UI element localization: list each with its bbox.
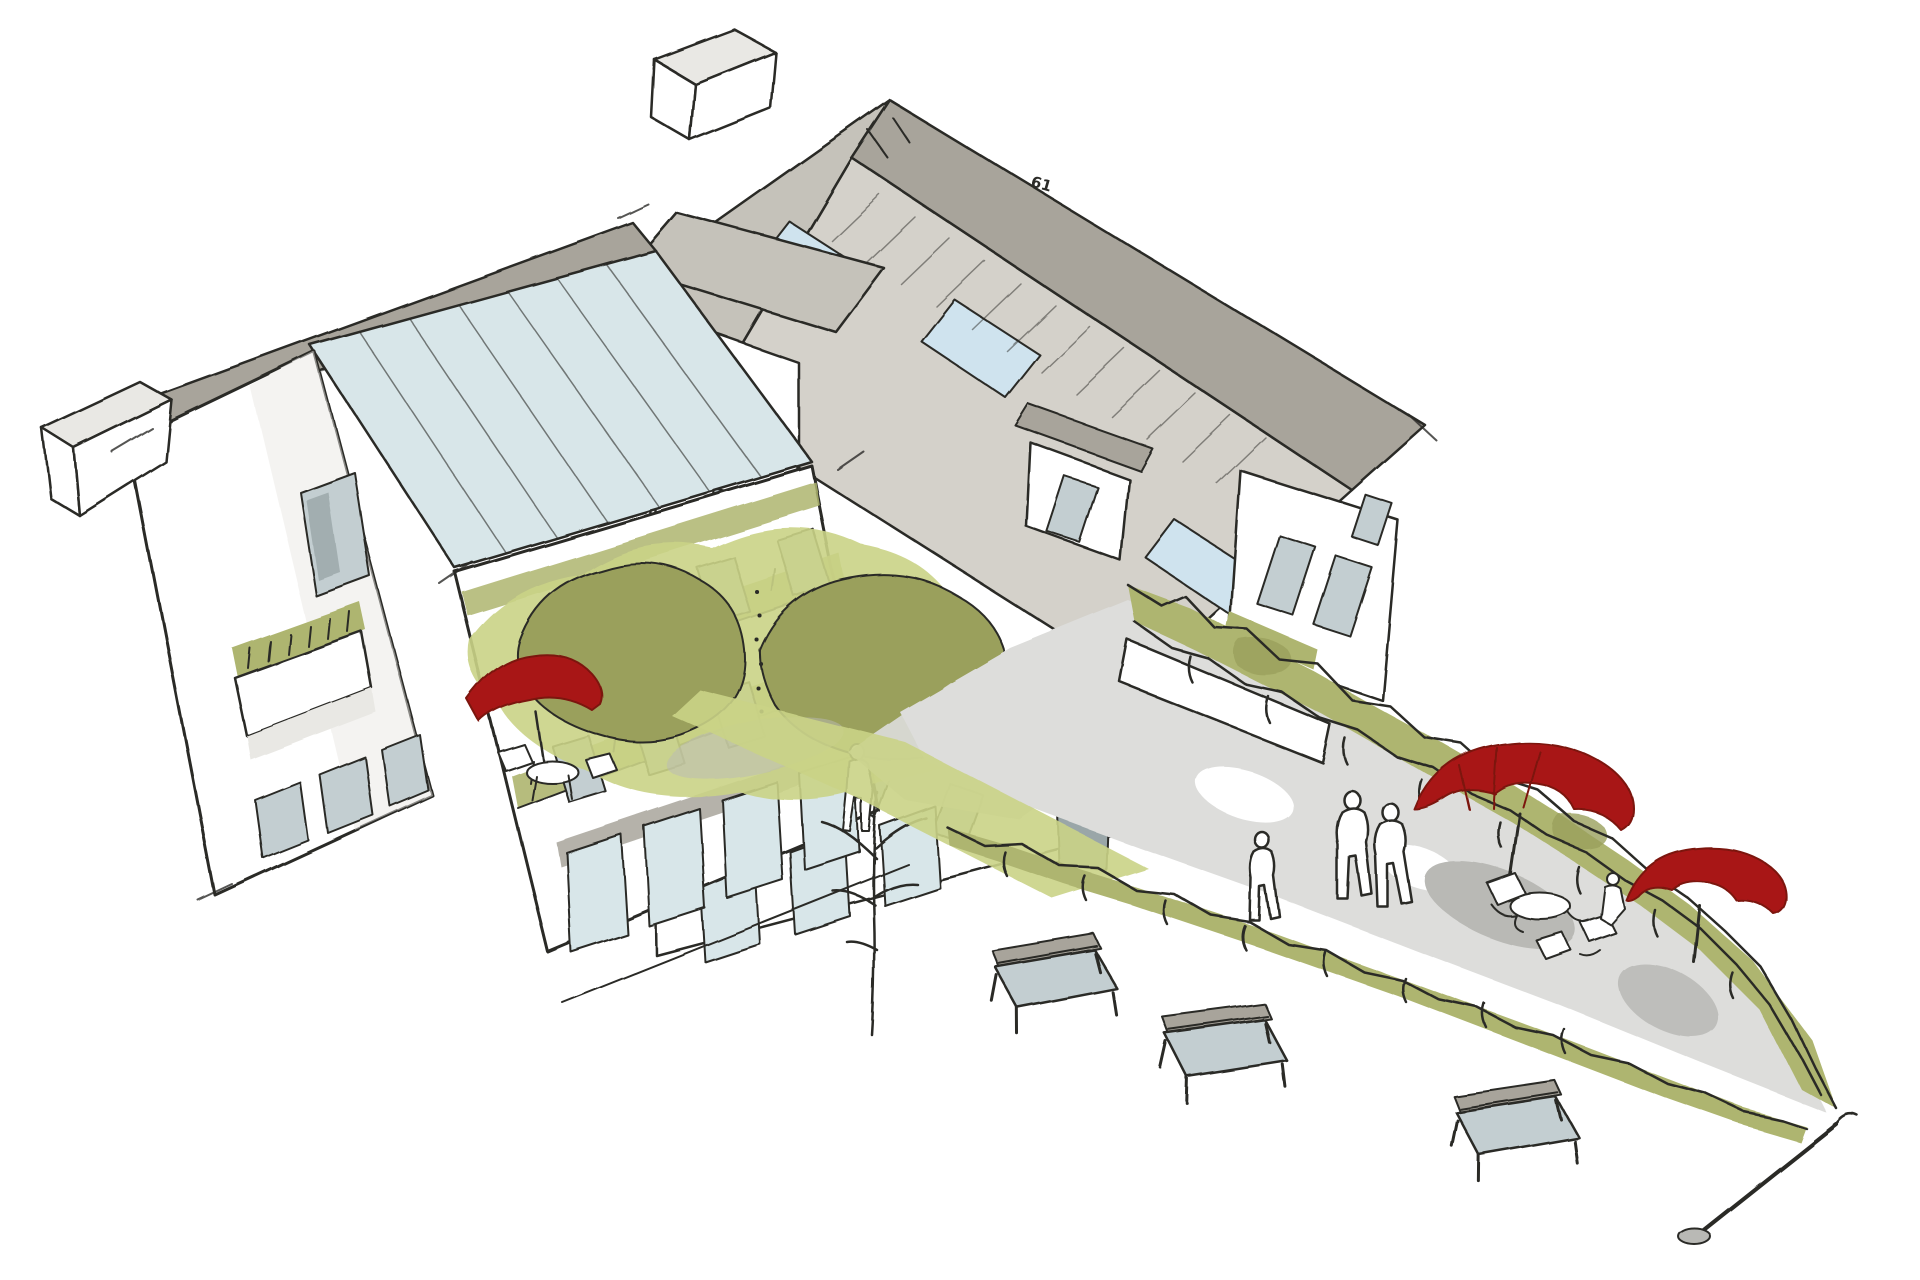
- scene: [0, 0, 1920, 1280]
- architectural-sketch: 61: [0, 0, 1920, 1280]
- storefront-glazing: [566, 834, 627, 952]
- pole-base: [1678, 1228, 1710, 1244]
- figure-head: [1344, 791, 1360, 809]
- figure-head: [1606, 872, 1618, 884]
- figure-head: [1255, 832, 1269, 848]
- storefront-glazing: [722, 782, 783, 898]
- sketch-canvas: 61: [0, 0, 1920, 1280]
- storefront-glazing: [644, 808, 705, 926]
- figure-head: [1382, 803, 1398, 821]
- cafe-table: [526, 761, 578, 783]
